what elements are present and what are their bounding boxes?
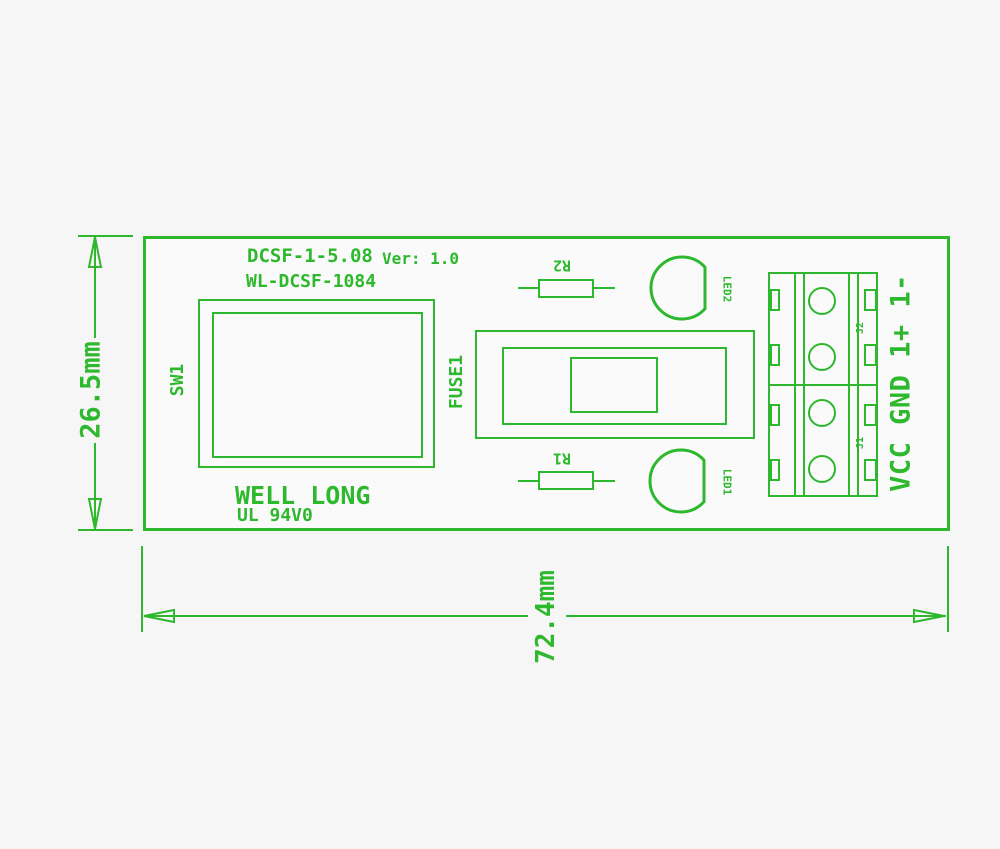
switch-label: SW1 [169, 364, 187, 397]
led-bottom-label: LED1 [722, 469, 733, 496]
pcb-dimension-drawing: DCSF-1-5.08 Ver: 1.0 WL-DCSF-1084 WELL L… [0, 0, 1000, 849]
resistor-top-lead-right [594, 287, 615, 289]
board-version-text: Ver: 1.0 [382, 251, 459, 267]
terminal-block-vline-2 [803, 272, 805, 497]
terminal-tab-right-3 [864, 404, 877, 426]
led-top-label: LED2 [722, 276, 733, 303]
switch-body [212, 312, 423, 458]
terminal-tab-left-3 [770, 404, 780, 426]
fuse-element [570, 357, 658, 413]
terminal-tab-right-4 [864, 459, 877, 481]
terminal-block-vline-4 [857, 272, 859, 497]
led-bottom-shape [646, 446, 716, 516]
terminal-tab-left-4 [770, 459, 780, 481]
terminal-screw-1 [808, 287, 836, 315]
connector-top-label: J2 [856, 322, 866, 334]
height-dim-arrow-up [84, 236, 106, 268]
terminal-tab-left-2 [770, 344, 780, 366]
terminal-block-divider [768, 384, 878, 386]
width-dim-value: 72.4mm [533, 570, 559, 664]
width-dim-arrow-right [913, 605, 945, 627]
resistor-top-lead-left [518, 287, 538, 289]
terminal-block-vline-1 [794, 272, 796, 497]
terminal-screw-3 [808, 399, 836, 427]
terminal-block-vline-3 [848, 272, 850, 497]
height-dim-arrow-down [84, 498, 106, 530]
width-dim-line-right [566, 615, 946, 617]
terminal-tab-right-2 [864, 344, 877, 366]
terminal-tab-left-1 [770, 289, 780, 311]
terminal-pin-labels: VCC GND 1+ 1- [888, 274, 915, 492]
resistor-top-body [538, 279, 594, 298]
board-model-text: DCSF-1-5.08 [247, 247, 373, 266]
fuse-label: FUSE1 [448, 355, 466, 409]
board-part-number-text: WL-DCSF-1084 [246, 273, 376, 291]
led-top-shape [647, 253, 717, 323]
flammability-rating-text: UL 94V0 [237, 507, 313, 525]
terminal-tab-right-1 [864, 289, 877, 311]
resistor-bottom-body [538, 471, 594, 490]
connector-bottom-label: J1 [856, 437, 866, 449]
resistor-bottom-lead-right [594, 480, 615, 482]
width-dim-ext-right [947, 546, 949, 632]
terminal-screw-2 [808, 343, 836, 371]
resistor-bottom-lead-left [518, 480, 538, 482]
resistor-bottom-label: R1 [553, 451, 571, 466]
resistor-top-label: R2 [553, 258, 571, 273]
width-dim-line-left [146, 615, 528, 617]
width-dim-arrow-left [143, 605, 175, 627]
terminal-screw-4 [808, 455, 836, 483]
height-dim-value: 26.5mm [78, 341, 105, 439]
